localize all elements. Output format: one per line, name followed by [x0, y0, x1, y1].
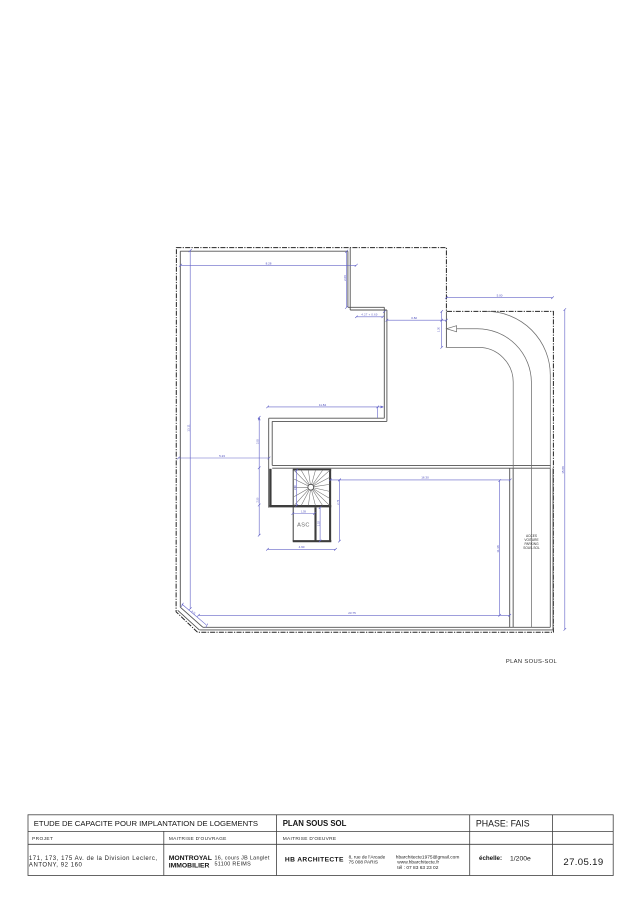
- svg-text:2.06: 2.06: [343, 275, 347, 281]
- svg-text:23.75: 23.75: [348, 611, 356, 615]
- svg-text:16, cours JB Langlet: 16, cours JB Langlet: [215, 855, 270, 861]
- svg-text:IMMOBILIER: IMMOBILIER: [169, 862, 210, 869]
- svg-text:ASC: ASC: [297, 523, 310, 529]
- svg-text:1.30: 1.30: [438, 326, 441, 331]
- svg-text:1.53: 1.53: [317, 521, 320, 526]
- svg-text:11.84: 11.84: [319, 403, 327, 407]
- svg-text:13.11: 13.11: [186, 424, 190, 432]
- svg-text:2.60: 2.60: [294, 484, 297, 489]
- svg-text:MAITRISE D'OEUVRE: MAITRISE D'OEUVRE: [283, 836, 337, 842]
- svg-text:2.50: 2.50: [256, 497, 259, 502]
- svg-text:HB ARCHITECTE: HB ARCHITECTE: [285, 857, 344, 864]
- svg-text:4.27 + 0.60: 4.27 + 0.60: [361, 312, 378, 316]
- svg-text:11.38: 11.38: [496, 545, 500, 553]
- svg-text:PLAN SOUS SOL: PLAN SOUS SOL: [283, 819, 347, 828]
- svg-text:MAITRISE D'OUVRAGE: MAITRISE D'OUVRAGE: [169, 836, 227, 842]
- svg-text:27.05.19: 27.05.19: [563, 857, 603, 868]
- svg-text:SOUS-SOL: SOUS-SOL: [523, 546, 540, 550]
- svg-text:4.90: 4.90: [299, 545, 305, 549]
- svg-text:PROJET: PROJET: [32, 836, 53, 842]
- svg-text:1.59: 1.59: [301, 511, 306, 514]
- svg-text:8.28: 8.28: [266, 261, 272, 265]
- svg-text:51100 REIMS: 51100 REIMS: [215, 862, 252, 868]
- svg-text:75 008 PARIS: 75 008 PARIS: [349, 859, 378, 864]
- svg-text:2.79: 2.79: [337, 499, 340, 504]
- svg-text:5.23: 5.23: [219, 454, 225, 458]
- svg-text:PLAN SOUS-SOL: PLAN SOUS-SOL: [506, 659, 558, 665]
- svg-text:5.00: 5.00: [497, 294, 503, 298]
- svg-text:PHASE: FAIS: PHASE: FAIS: [476, 818, 530, 828]
- svg-text:15.88: 15.88: [561, 466, 565, 474]
- svg-text:MONTROYAL: MONTROYAL: [169, 855, 212, 862]
- svg-text:www.hbarchitecte.fr: www.hbarchitecte.fr: [397, 859, 439, 865]
- svg-text:1/200e: 1/200e: [510, 855, 531, 862]
- svg-text:ETUDE DE CAPACITE POUR IMPLANT: ETUDE DE CAPACITE POUR IMPLANTATION DE L…: [34, 819, 258, 828]
- svg-text:tél : 07 83 63 23 02: tél : 07 83 63 23 02: [397, 865, 438, 871]
- svg-text:échelle:: échelle:: [479, 855, 502, 862]
- svg-text:ANTONY, 92 160: ANTONY, 92 160: [29, 862, 83, 868]
- svg-text:3.05: 3.05: [256, 438, 259, 443]
- svg-text:16.30: 16.30: [421, 476, 429, 480]
- svg-text:171, 173, 175 Av. de la Divisi: 171, 173, 175 Av. de la Division Leclerc…: [29, 856, 158, 862]
- svg-text:3.21: 3.21: [190, 610, 196, 616]
- svg-text:0.82: 0.82: [411, 316, 417, 320]
